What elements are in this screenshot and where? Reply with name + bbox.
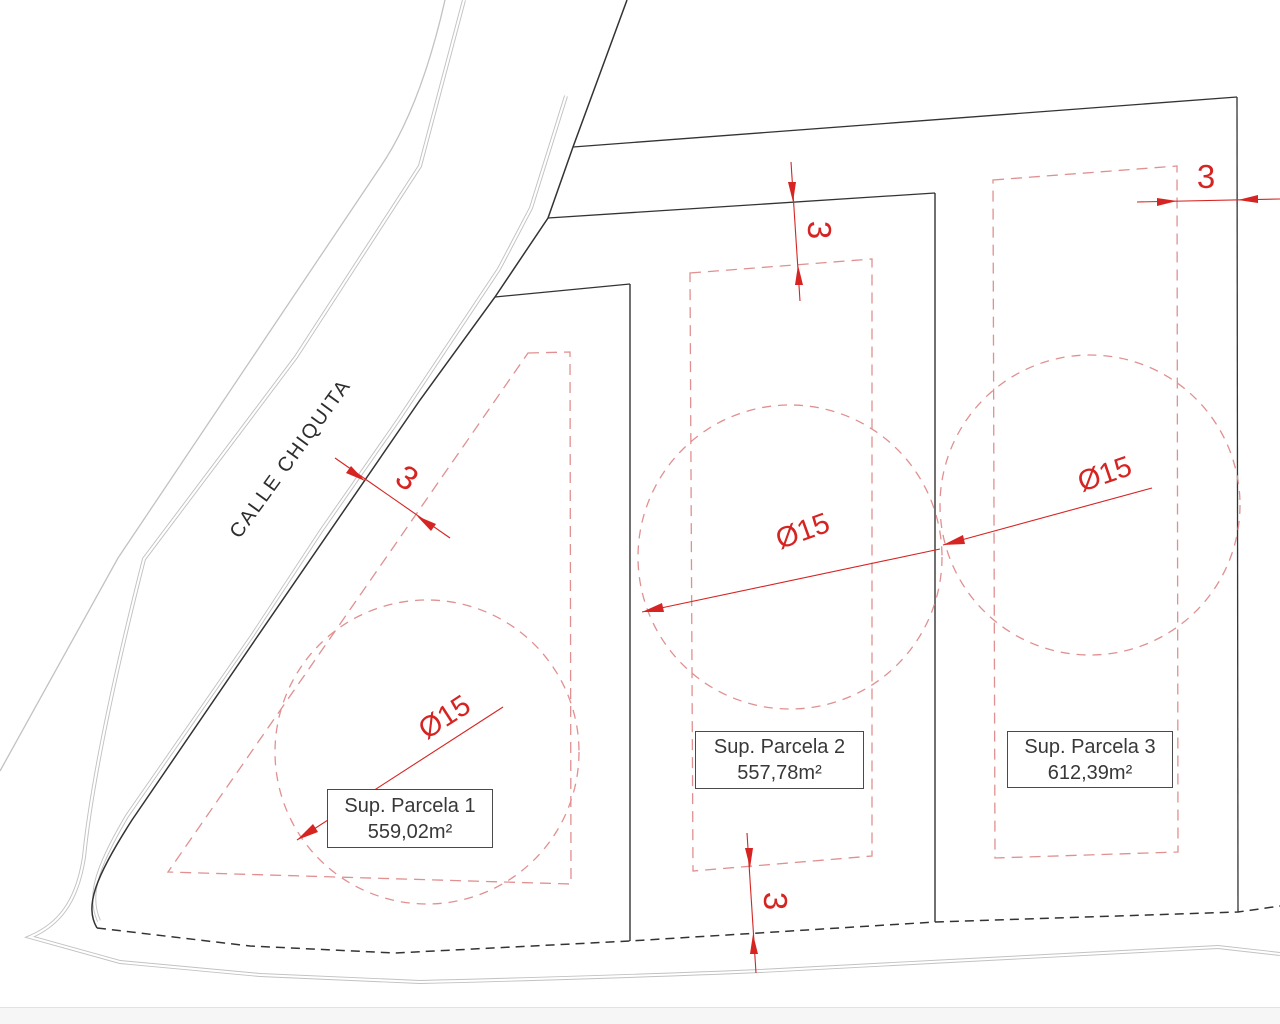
site-plan-drawing: CALLE CHIQUITA Ø15 Ø15 Ø15 3 3 3 3 Sup. … xyxy=(0,0,1280,1024)
dimension-lines xyxy=(297,162,1280,973)
boundary-bottom-edge xyxy=(97,906,1280,953)
parcel3-diameter-line xyxy=(943,488,1152,545)
parcel1-building-circle xyxy=(275,600,579,904)
parcel2-name: Sup. Parcela 2 xyxy=(714,734,845,760)
parcel2-block-top-line xyxy=(548,193,935,218)
bottom-setback-dim-label: 3 xyxy=(756,892,794,910)
parcel1-block-top-line xyxy=(495,284,630,297)
parcel2-area: 557,78m² xyxy=(737,760,822,786)
parcel1-diameter-arrow xyxy=(297,824,318,840)
parcel1-area: 559,02m² xyxy=(368,819,453,845)
boundary-right-edge xyxy=(1237,97,1238,912)
parcel3-name: Sup. Parcela 3 xyxy=(1024,734,1155,760)
parcel2-area-box: Sup. Parcela 2 557,78m² xyxy=(695,731,864,789)
plan-linework xyxy=(0,0,1280,1024)
right-setback-dim-label: 3 xyxy=(1197,158,1215,196)
road-left-outer-curb-line xyxy=(0,0,445,771)
boundary-top-edge xyxy=(573,97,1237,147)
parcel3-area: 612,39m² xyxy=(1048,760,1133,786)
top-setback-dim-label: 3 xyxy=(800,221,838,239)
parcel3-area-box: Sup. Parcela 3 612,39m² xyxy=(1007,731,1173,788)
right-dim-arrow-left xyxy=(1157,198,1177,206)
parcel1-area-box: Sup. Parcela 1 559,02m² xyxy=(327,789,493,848)
parcel2-diameter-line xyxy=(642,549,940,612)
lower-road-band xyxy=(0,1007,1280,1024)
parcel1-name: Sup. Parcela 1 xyxy=(344,793,475,819)
top-dim-arrow-upper xyxy=(788,182,796,202)
parcel3-diameter-arrow xyxy=(943,535,965,545)
parcel2-building-circle xyxy=(638,405,942,709)
parcel2-diameter-arrow xyxy=(642,603,664,612)
top-dim-arrow-lower xyxy=(795,265,803,285)
right-dim-arrow-right xyxy=(1238,195,1258,203)
road-dim-arrow-lower xyxy=(417,516,436,531)
